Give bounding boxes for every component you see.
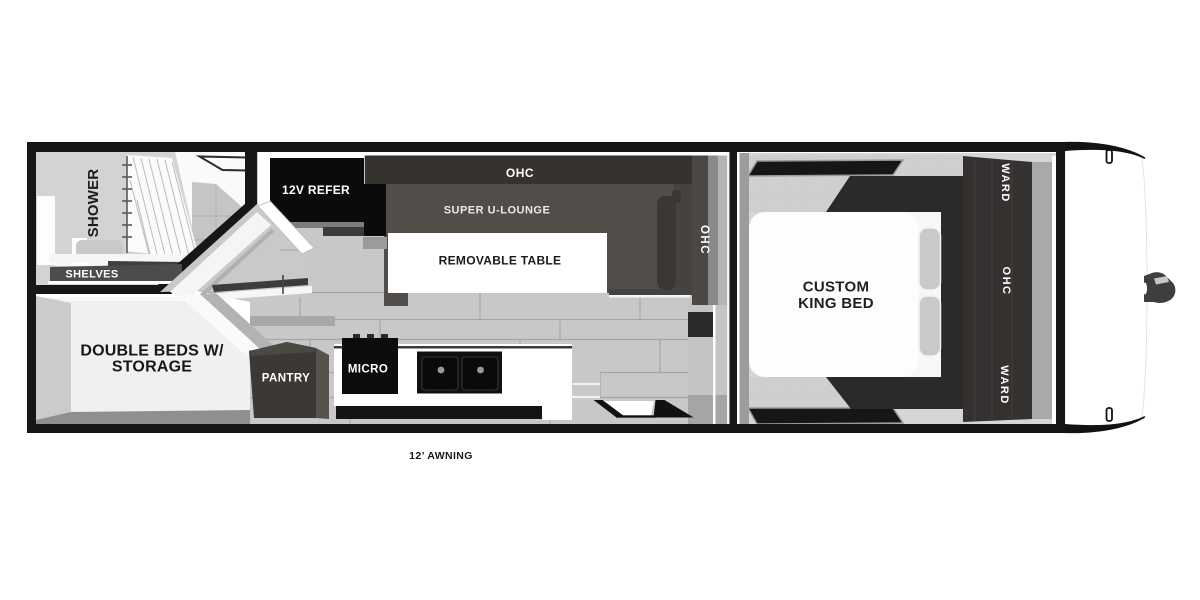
svg-text:KING BED: KING BED <box>798 295 874 312</box>
svg-text:REMOVABLE TABLE: REMOVABLE TABLE <box>439 254 562 268</box>
svg-text:STORAGE: STORAGE <box>112 359 192 376</box>
svg-text:MICRO: MICRO <box>348 364 388 376</box>
svg-text:PANTRY: PANTRY <box>262 373 310 385</box>
svg-text:SHELVES: SHELVES <box>65 269 118 281</box>
svg-text:WARD: WARD <box>998 365 1010 405</box>
svg-text:SHOWER: SHOWER <box>85 169 102 238</box>
svg-text:OHC: OHC <box>506 166 534 180</box>
svg-text:WARD: WARD <box>999 163 1011 203</box>
svg-text:SUPER U-LOUNGE: SUPER U-LOUNGE <box>444 205 551 217</box>
svg-text:OHC: OHC <box>1000 267 1012 296</box>
svg-text:12V REFER: 12V REFER <box>282 183 350 197</box>
svg-text:12’ AWNING: 12’ AWNING <box>409 450 473 462</box>
svg-text:DOUBLE BEDS W/: DOUBLE BEDS W/ <box>80 343 224 360</box>
svg-text:OHC: OHC <box>698 225 710 255</box>
svg-text:CUSTOM: CUSTOM <box>803 279 870 296</box>
